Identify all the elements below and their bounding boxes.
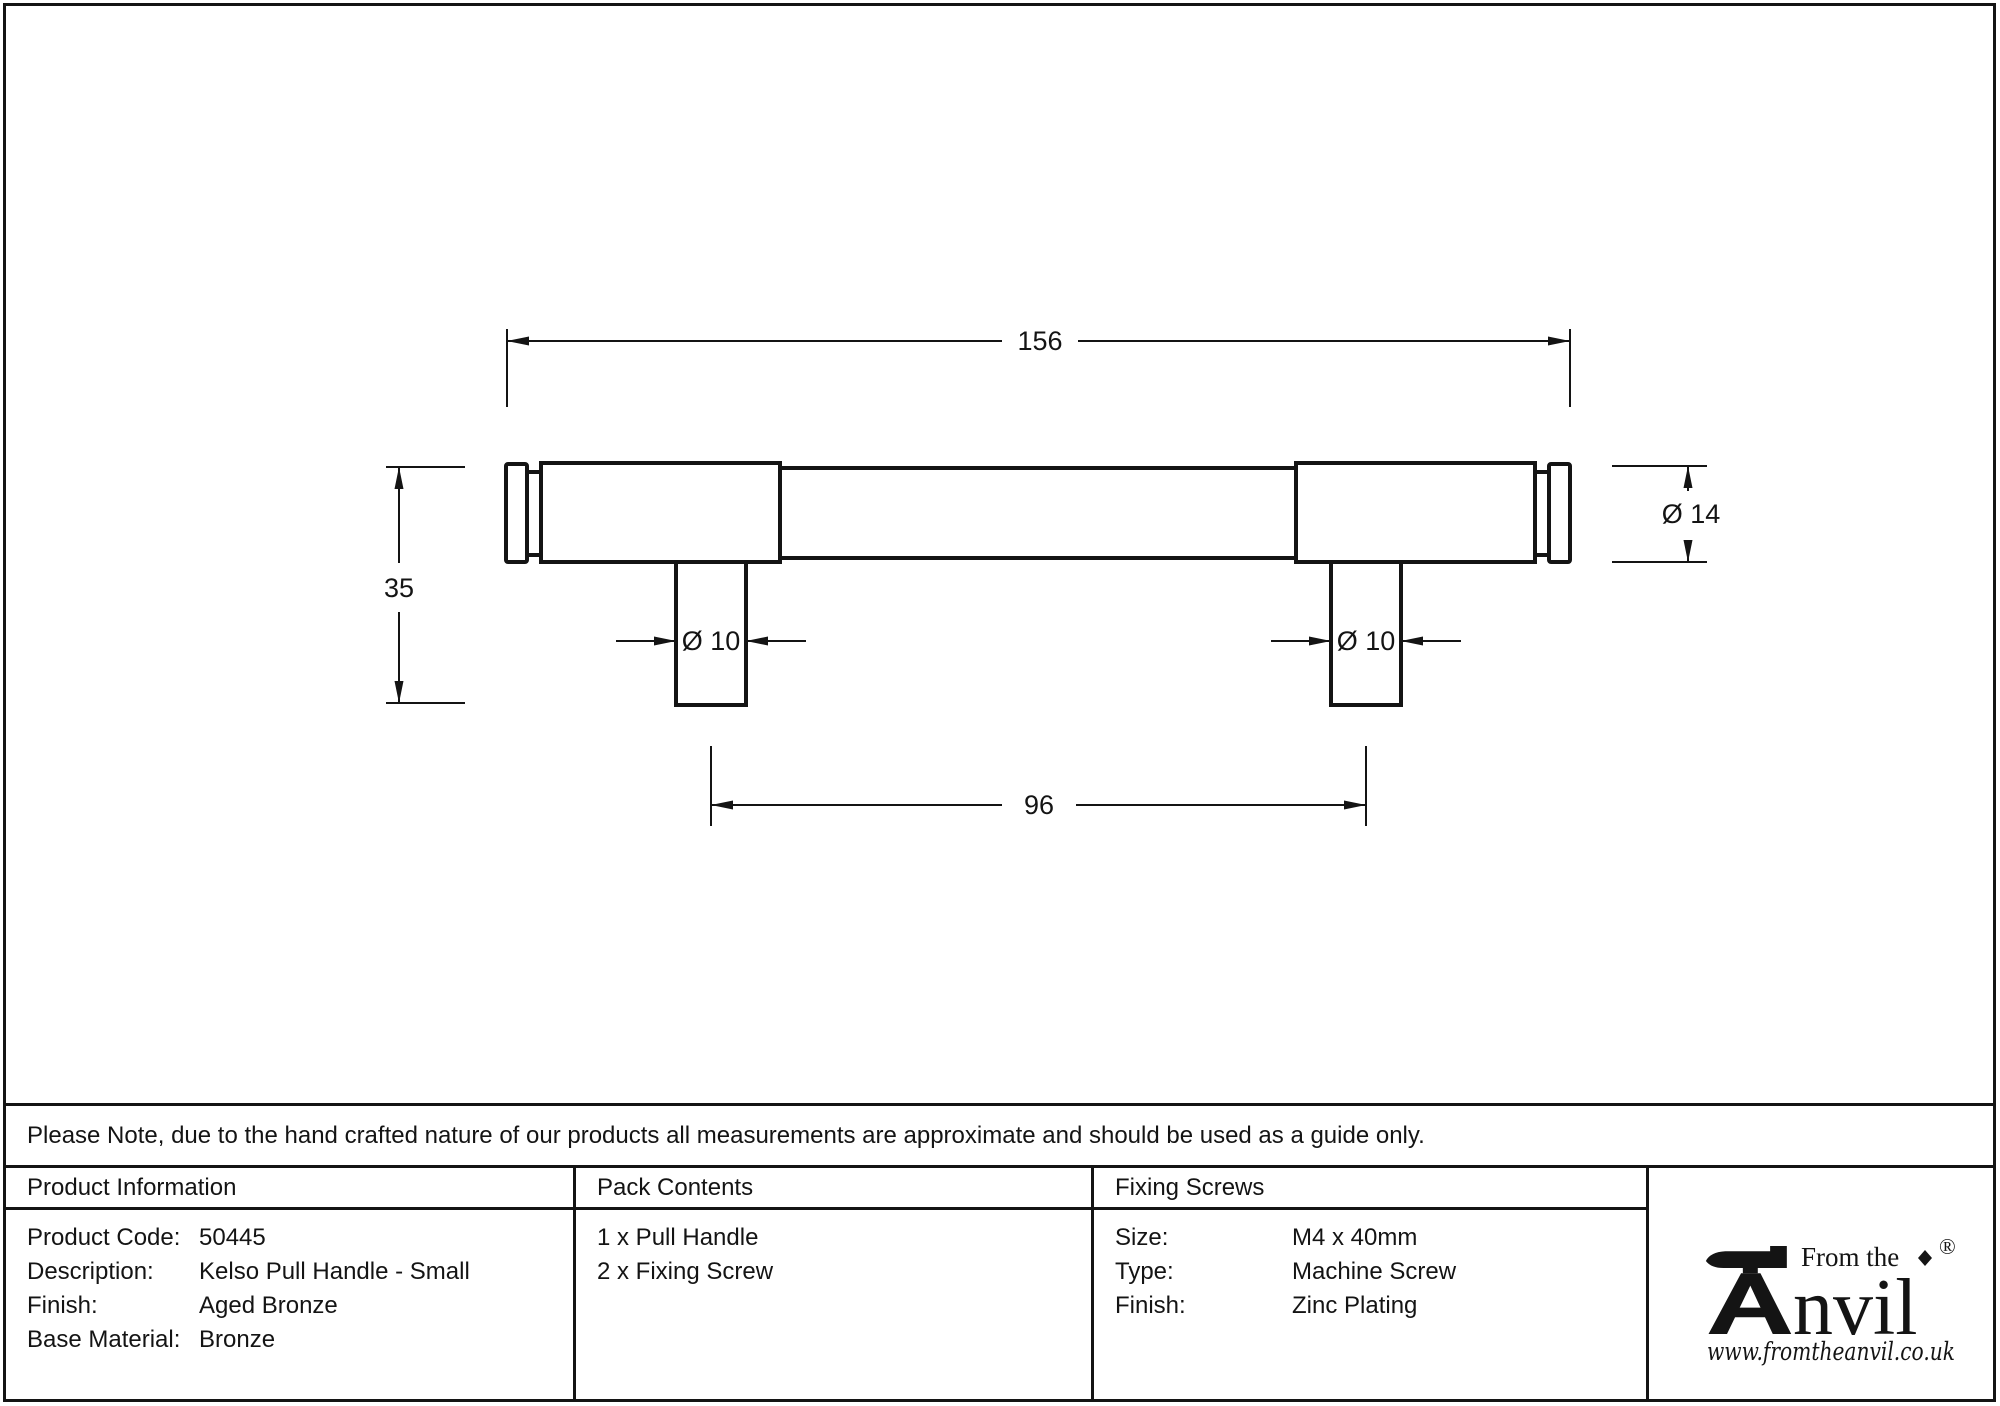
row-label: Finish: bbox=[1115, 1292, 1292, 1320]
technical-drawing: 156 35 Ø 14 bbox=[6, 6, 1993, 1103]
row-label: Base Material: bbox=[27, 1326, 199, 1354]
fixing-screws-body: Size: M4 x 40mm Type: Machine Screw Fini… bbox=[1094, 1210, 1646, 1323]
dim-label-projection: 35 bbox=[384, 573, 414, 603]
dim-label-fixing-centres: 96 bbox=[1024, 790, 1054, 820]
info-table: Product Information Product Code: 50445 … bbox=[6, 1165, 1993, 1399]
measurement-note-row: Please Note, due to the hand crafted nat… bbox=[6, 1103, 1993, 1165]
row-label: Finish: bbox=[27, 1292, 199, 1320]
pack-contents-header: Pack Contents bbox=[576, 1168, 1091, 1210]
measurement-note-text: Please Note, due to the hand crafted nat… bbox=[27, 1122, 1425, 1150]
spec-sheet: 156 35 Ø 14 bbox=[3, 3, 1996, 1402]
product-information-body: Product Code: 50445 Description: Kelso P… bbox=[6, 1210, 573, 1357]
logo-registered-mark: ® bbox=[1939, 1234, 1956, 1259]
grip-right bbox=[1296, 463, 1535, 562]
grip-left bbox=[541, 463, 780, 562]
fixing-screws-header: Fixing Screws bbox=[1094, 1168, 1646, 1210]
pack-contents-body: 1 x Pull Handle 2 x Fixing Screw bbox=[576, 1210, 1091, 1289]
drawing-area: 156 35 Ø 14 bbox=[6, 6, 1993, 1103]
column-fixing-screws: Fixing Screws Size: M4 x 40mm Type: Mach… bbox=[1091, 1168, 1646, 1399]
dimension-fixing-centres: 96 bbox=[711, 746, 1366, 826]
dimension-end-diameter: Ø 14 bbox=[1612, 466, 1720, 562]
table-row: Description: Kelso Pull Handle - Small bbox=[27, 1255, 573, 1289]
row-label: Description: bbox=[27, 1258, 199, 1286]
centre-bar bbox=[779, 468, 1297, 558]
row-value: Machine Screw bbox=[1292, 1258, 1456, 1286]
table-row: Size: M4 x 40mm bbox=[1115, 1221, 1646, 1255]
dimension-post-diameter-right: Ø 10 bbox=[1271, 626, 1461, 656]
pull-handle-outline bbox=[506, 463, 1570, 705]
table-row: 2 x Fixing Screw bbox=[597, 1255, 1091, 1289]
logo-website: www.fromtheanvil.co.uk bbox=[1707, 1337, 1955, 1366]
row-value: Zinc Plating bbox=[1292, 1292, 1417, 1320]
dim-label-overall-length: 156 bbox=[1017, 326, 1062, 356]
table-row: Finish: Aged Bronze bbox=[27, 1289, 573, 1323]
row-label: Type: bbox=[1115, 1258, 1292, 1286]
row-value: Kelso Pull Handle - Small bbox=[199, 1258, 470, 1286]
from-the-anvil-logo: From the ® nvil www.fromtheanvil.co.uk bbox=[1703, 1230, 1963, 1366]
dimension-projection: 35 bbox=[384, 467, 465, 703]
table-row: Type: Machine Screw bbox=[1115, 1255, 1646, 1289]
column-pack-contents: Pack Contents 1 x Pull Handle 2 x Fixing… bbox=[573, 1168, 1091, 1399]
row-label: Size: bbox=[1115, 1224, 1292, 1252]
table-row: 1 x Pull Handle bbox=[597, 1221, 1091, 1255]
dimension-overall-length: 156 bbox=[507, 326, 1570, 407]
dim-label-post-diameter-left: Ø 10 bbox=[682, 626, 741, 656]
table-row: Base Material: Bronze bbox=[27, 1323, 573, 1357]
row-value: Bronze bbox=[199, 1326, 275, 1354]
product-information-header: Product Information bbox=[6, 1168, 573, 1210]
end-cap-right bbox=[1549, 464, 1570, 562]
logo-diamond-icon bbox=[1918, 1250, 1932, 1266]
dimension-post-diameter-left: Ø 10 bbox=[616, 626, 806, 656]
table-row: Finish: Zinc Plating bbox=[1115, 1289, 1646, 1323]
row-value: Aged Bronze bbox=[199, 1292, 338, 1320]
brand-cell: From the ® nvil www.fromtheanvil.co.uk bbox=[1646, 1168, 1993, 1399]
dim-label-post-diameter-right: Ø 10 bbox=[1337, 626, 1396, 656]
anvil-a-icon bbox=[1706, 1246, 1791, 1334]
row-label: Product Code: bbox=[27, 1224, 199, 1252]
column-product-information: Product Information Product Code: 50445 … bbox=[6, 1168, 573, 1399]
dim-label-end-diameter: Ø 14 bbox=[1662, 499, 1721, 529]
row-value: 50445 bbox=[199, 1224, 266, 1252]
row-value: M4 x 40mm bbox=[1292, 1224, 1417, 1252]
table-row: Product Code: 50445 bbox=[27, 1221, 573, 1255]
end-cap-left bbox=[506, 464, 527, 562]
